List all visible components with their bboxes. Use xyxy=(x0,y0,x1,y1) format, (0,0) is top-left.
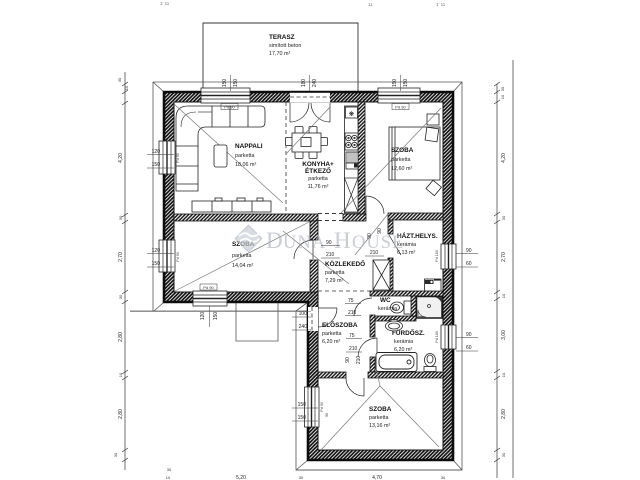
svg-text:30: 30 xyxy=(118,294,123,299)
svg-text:30: 30 xyxy=(500,86,505,91)
svg-text:parketta: parketta xyxy=(235,153,254,159)
svg-text:90: 90 xyxy=(345,357,351,363)
svg-text:150: 150 xyxy=(222,79,228,88)
svg-text:kerámia: kerámia xyxy=(378,306,397,312)
svg-text:Pd 180: Pd 180 xyxy=(435,250,439,261)
svg-text:150: 150 xyxy=(233,79,239,88)
svg-text:kerámia: kerámia xyxy=(394,339,413,345)
svg-text:11: 11 xyxy=(368,2,373,7)
svg-text:1′ 11: 1′ 11 xyxy=(436,2,446,7)
svg-text:75: 75 xyxy=(349,333,355,339)
svg-text:2,80: 2,80 xyxy=(118,409,124,419)
svg-text:210: 210 xyxy=(356,356,362,365)
svg-text:ÉTKEZŐ: ÉTKEZŐ xyxy=(305,166,331,175)
svg-text:D: D xyxy=(266,228,283,253)
svg-text:150: 150 xyxy=(298,402,307,408)
svg-text:2,80: 2,80 xyxy=(501,409,507,419)
svg-text:30: 30 xyxy=(501,452,506,457)
svg-text:30: 30 xyxy=(113,452,118,457)
svg-text:12,60 m²: 12,60 m² xyxy=(391,166,412,172)
svg-text:240: 240 xyxy=(299,324,308,330)
svg-text:ELŐSZOBA: ELŐSZOBA xyxy=(322,320,358,329)
svg-text:10: 10 xyxy=(501,372,506,377)
svg-text:60: 60 xyxy=(466,261,472,267)
svg-text:3,00: 3,00 xyxy=(501,330,507,340)
svg-text:2,80: 2,80 xyxy=(118,332,124,342)
svg-text:2,70: 2,70 xyxy=(501,252,507,262)
svg-text:FÜRDŐSZ.: FÜRDŐSZ. xyxy=(392,328,425,337)
svg-text:90: 90 xyxy=(377,228,383,234)
svg-text:NAPPALI: NAPPALI xyxy=(235,143,263,150)
svg-text:210: 210 xyxy=(370,250,379,256)
svg-text:TERASZ: TERASZ xyxy=(269,34,295,41)
svg-text:30: 30 xyxy=(118,215,123,220)
svg-text:90: 90 xyxy=(367,233,373,239)
svg-text:5,20: 5,20 xyxy=(236,475,246,480)
svg-text:Pd 90: Pd 90 xyxy=(176,252,180,261)
svg-text:90: 90 xyxy=(466,248,472,254)
svg-text:Pd 90: Pd 90 xyxy=(203,285,214,290)
svg-text:210: 210 xyxy=(326,252,335,258)
svg-text:❋: ❋ xyxy=(349,110,355,118)
svg-text:Pd 90: Pd 90 xyxy=(395,105,406,110)
svg-text:1′ 11: 1′ 11 xyxy=(160,1,170,6)
svg-text:10: 10 xyxy=(166,475,171,480)
svg-text:90: 90 xyxy=(326,240,332,246)
svg-text:Pd 90: Pd 90 xyxy=(320,402,324,411)
svg-text:parketta: parketta xyxy=(322,331,341,337)
svg-text:30: 30 xyxy=(299,475,304,480)
svg-text:10: 10 xyxy=(118,372,123,377)
svg-text:simított beton: simított beton xyxy=(269,43,301,49)
svg-text:75: 75 xyxy=(348,298,354,304)
svg-text:KONYHA+: KONYHA+ xyxy=(302,161,334,168)
svg-text:120: 120 xyxy=(200,312,206,321)
svg-text:parketta: parketta xyxy=(325,270,344,276)
svg-text:Pd 180: Pd 180 xyxy=(435,331,439,342)
svg-text:100: 100 xyxy=(299,311,308,317)
svg-text:4,20: 4,20 xyxy=(118,153,124,163)
svg-text:150: 150 xyxy=(152,162,161,168)
svg-text:90: 90 xyxy=(466,332,472,338)
svg-text:10: 10 xyxy=(501,293,506,298)
svg-text:parketta: parketta xyxy=(391,157,410,163)
svg-text:Pd 90: Pd 90 xyxy=(176,153,180,162)
svg-text:150: 150 xyxy=(152,261,161,267)
svg-text:150: 150 xyxy=(213,312,219,321)
svg-text:KÖZLEKEDŐ: KÖZLEKEDŐ xyxy=(325,259,365,268)
svg-text:14,04 m²: 14,04 m² xyxy=(232,263,253,269)
svg-text:H: H xyxy=(334,228,351,253)
svg-text:SZOBA: SZOBA xyxy=(369,406,392,413)
svg-text:parketta: parketta xyxy=(369,415,388,421)
svg-text:SZOBA: SZOBA xyxy=(391,147,414,154)
svg-text:150: 150 xyxy=(403,79,409,88)
svg-text:120: 120 xyxy=(152,149,161,155)
svg-text:UNA: UNA xyxy=(283,233,326,253)
svg-text:2,70: 2,70 xyxy=(118,252,124,262)
svg-text:180: 180 xyxy=(301,79,307,88)
svg-text:18,06 m²: 18,06 m² xyxy=(235,162,256,168)
svg-text:90: 90 xyxy=(325,413,329,417)
svg-text:10: 10 xyxy=(500,94,505,99)
svg-text:7,29 m²: 7,29 m² xyxy=(325,278,343,284)
svg-text:30: 30 xyxy=(441,475,446,480)
svg-text:4,70: 4,70 xyxy=(372,475,382,480)
svg-text:210: 210 xyxy=(349,346,358,352)
svg-text:11,76 m²: 11,76 m² xyxy=(308,184,329,190)
svg-text:parketta: parketta xyxy=(308,176,327,182)
svg-text:240: 240 xyxy=(312,79,318,88)
svg-text:6,20 m²: 6,20 m² xyxy=(322,339,340,345)
svg-text:120: 120 xyxy=(152,248,161,254)
svg-text:210: 210 xyxy=(348,310,357,316)
svg-text:6,20 m²: 6,20 m² xyxy=(394,347,412,353)
svg-text:150: 150 xyxy=(298,415,307,421)
svg-text:17,70 m²: 17,70 m² xyxy=(269,51,290,57)
svg-text:30: 30 xyxy=(167,467,172,472)
svg-text:parketta: parketta xyxy=(232,253,251,259)
svg-text:13,16 m²: 13,16 m² xyxy=(369,423,390,429)
svg-text:60: 60 xyxy=(466,345,472,351)
svg-text:10: 10 xyxy=(124,85,129,90)
svg-text:30: 30 xyxy=(117,77,122,82)
svg-text:150: 150 xyxy=(392,79,398,88)
svg-text:4,20: 4,20 xyxy=(501,153,507,163)
svg-text:30: 30 xyxy=(501,215,506,220)
svg-text:WC: WC xyxy=(380,297,391,304)
